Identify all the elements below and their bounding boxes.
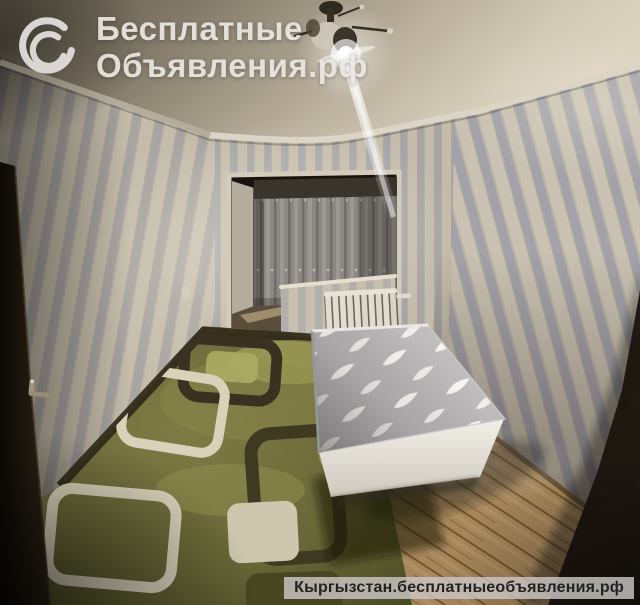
site-caption: Кыргызстан.бесплатныеобъявления.рф	[284, 577, 634, 599]
room-photo: Бесплатные Объявления.рф Кыргызстан.бесп…	[0, 0, 640, 605]
site-caption-text: Кыргызстан.бесплатныеобъявления.рф	[294, 579, 624, 596]
wall-socket	[182, 287, 190, 298]
room-scene	[0, 0, 640, 605]
